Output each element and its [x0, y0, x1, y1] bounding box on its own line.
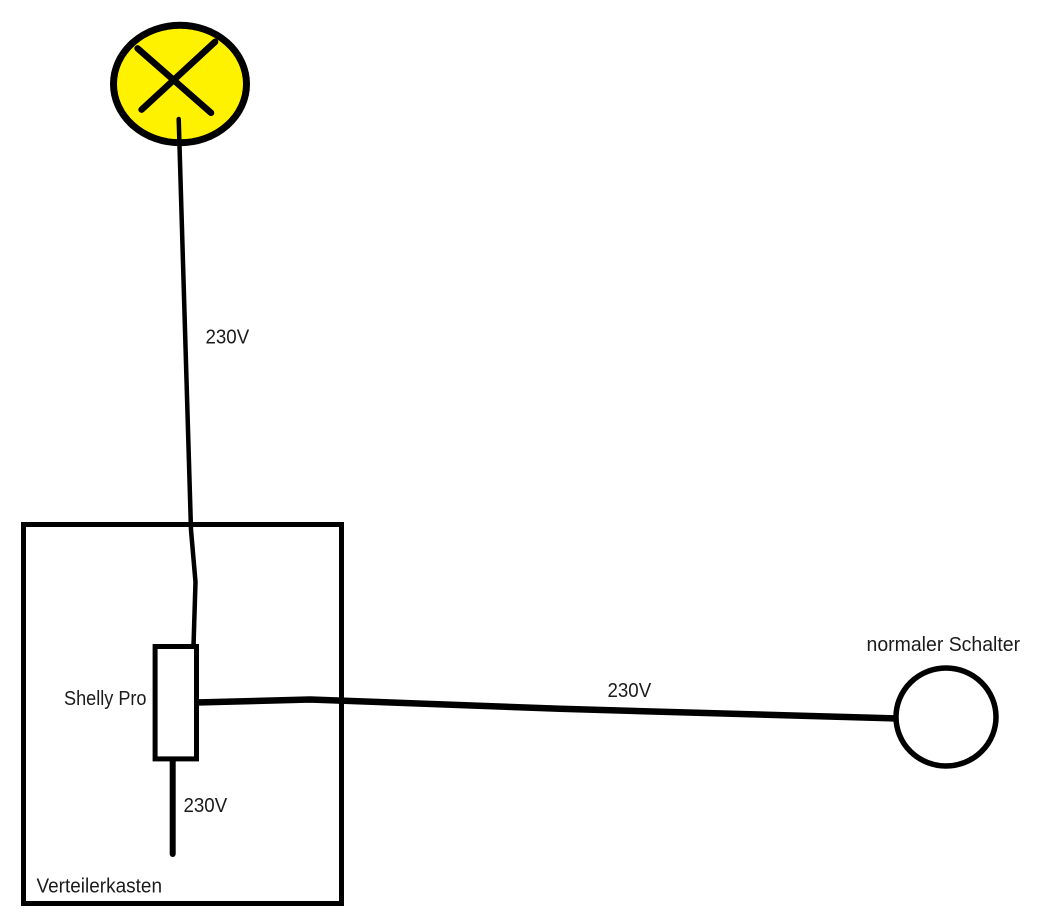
svg-text:Verteilerkasten: Verteilerkasten: [37, 875, 163, 897]
svg-text:Shelly Pro: Shelly Pro: [64, 688, 147, 710]
svg-text:230V: 230V: [184, 795, 228, 817]
svg-text:230V: 230V: [608, 680, 652, 702]
svg-text:normaler Schalter: normaler Schalter: [867, 634, 1021, 656]
svg-text:230V: 230V: [206, 327, 250, 349]
